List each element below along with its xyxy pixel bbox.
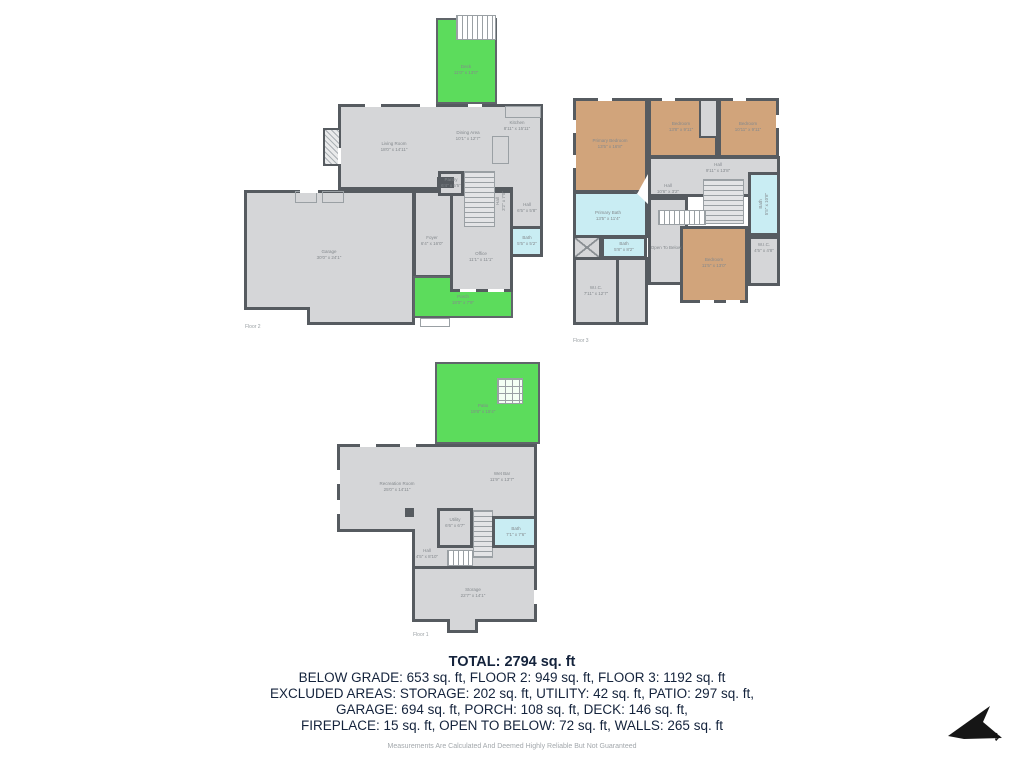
window-marker xyxy=(700,300,714,303)
window-marker xyxy=(338,148,341,164)
summary-line: GARAGE: 694 sq. ft, PORCH: 108 sq. ft, D… xyxy=(0,702,1024,718)
floor1-post xyxy=(405,508,414,517)
floor3-closet-x xyxy=(573,236,601,259)
window-marker xyxy=(337,500,340,514)
area-summary: TOTAL: 2794 sq. ft BELOW GRADE: 653 sq. … xyxy=(0,654,1024,734)
room-label-wic-small: W.I.C.4'5" x 4'8" xyxy=(754,242,774,254)
room-label-hall: Hall6'5" x 5'8" xyxy=(517,202,537,214)
room-label-utility: Utility6'6" x 6'7" xyxy=(445,517,465,529)
north-arrow-icon xyxy=(944,702,1014,754)
floor3-stairs-horizontal-run xyxy=(658,210,706,225)
room-label-bath: Bath5'5" x 5'2" xyxy=(517,235,537,247)
window-marker xyxy=(488,289,504,292)
disclaimer-text: Measurements Are Calculated And Deemed H… xyxy=(0,743,1024,750)
room-label-kitchen: Kitchen8'11" x 15'11" xyxy=(504,120,531,132)
window-marker xyxy=(534,590,537,604)
room-label-wet-bar: Wet Bar11'9" x 13'7" xyxy=(490,471,514,483)
floor2-porch-step xyxy=(420,318,450,327)
room-label-bedroom-right: Bedroom10'11" x 9'11" xyxy=(735,121,762,133)
room-label-deck: Deck11'0" x 13'0" xyxy=(454,64,478,76)
room-label-bath-right: Bath5'5" x 10'8" xyxy=(758,193,770,215)
room-label-office: Office11'1" x 11'1" xyxy=(469,251,493,263)
floor2-foyer-area xyxy=(413,190,455,278)
window-marker xyxy=(468,104,482,107)
floor3-interior-wall xyxy=(616,259,619,323)
floor1-stairs-vertical-run xyxy=(473,510,493,558)
room-label-bedroom-bottom: Bedroom11'5" x 13'0" xyxy=(702,257,726,269)
room-label-bath: Bath7'1" x 7'6" xyxy=(506,526,526,538)
window-marker xyxy=(420,104,436,107)
window-marker xyxy=(662,98,675,101)
room-label-dining-area: Dining Area10'1" x 12'7" xyxy=(456,130,481,142)
floor1-label: Floor 1 xyxy=(413,632,429,638)
window-marker xyxy=(365,104,381,107)
window-marker xyxy=(400,444,416,447)
floor3-label: Floor 3 xyxy=(573,338,589,344)
floor2-label: Floor 2 xyxy=(245,324,261,330)
room-label-hall-upper: Hall9'11" x 13'8" xyxy=(706,162,730,174)
summary-line: FIREPLACE: 15 sq. ft, OPEN TO BELOW: 72 … xyxy=(0,718,1024,734)
floor2-stairs xyxy=(464,171,495,227)
room-label-storage: Storage22'7" x 14'1" xyxy=(461,587,486,599)
room-label-bedroom-mid: Bedroom13'8" x 9'11" xyxy=(669,121,693,133)
room-label-foyer: Foyer6'4" x 16'0" xyxy=(421,235,443,247)
room-label-primary-bath: Primary Bath13'5" x 11'4" xyxy=(595,210,621,222)
floor1-stairs-horizontal-run xyxy=(447,550,473,566)
summary-line: BELOW GRADE: 653 sq. ft, FLOOR 2: 949 sq… xyxy=(0,670,1024,686)
floor2-kitchen-counter xyxy=(505,106,541,118)
floor2-kitchen-island xyxy=(492,136,509,164)
room-label-primary-bedroom: Primary Bedroom13'5" x 16'8" xyxy=(592,138,627,150)
floor1-patio-stairs xyxy=(497,378,523,404)
room-label-living-room: Living Room18'0" x 14'11" xyxy=(381,141,408,153)
window-marker xyxy=(360,444,376,447)
window-marker xyxy=(598,98,612,101)
room-label-hall-small: Hall10'6" x 3'2" xyxy=(657,183,679,195)
floorplan-canvas: Deck11'0" x 13'0" Living Room18'0" x 14'… xyxy=(0,0,1024,768)
room-label-garage: Garage30'0" x 24'1" xyxy=(317,249,342,261)
room-label-bath-small: Bath5'8" x 8'2" xyxy=(614,241,634,253)
window-marker xyxy=(776,115,779,128)
room-label-hall-stairs: Hall3'2" x 7'0" xyxy=(495,191,507,211)
window-marker xyxy=(337,470,340,484)
window-marker xyxy=(733,98,746,101)
room-label-patio: Patio19'8" x 15'4" xyxy=(471,403,496,415)
window-marker xyxy=(726,300,740,303)
room-label-pantry: Pantry6'4" x 5'5" xyxy=(441,177,461,189)
window-marker xyxy=(573,120,576,133)
window-marker xyxy=(573,155,576,168)
floor2-garage-notch xyxy=(307,307,415,325)
room-label-open-to-below: Open To Below xyxy=(651,245,681,251)
window-marker xyxy=(460,289,476,292)
north-arrow: N xyxy=(944,702,1014,754)
summary-line: EXCLUDED AREAS: STORAGE: 202 sq. ft, UTI… xyxy=(0,686,1024,702)
room-label-porch: Porch18'0" x 7'9" xyxy=(452,294,474,306)
floor3-stairs-vertical-run xyxy=(703,179,744,224)
floor2-deck-stairs xyxy=(456,15,496,40)
floor3-closet xyxy=(699,99,718,138)
floor2-garage-door-marker xyxy=(322,191,344,203)
room-label-wic: W.I.C.7'11" x 12'7" xyxy=(584,285,608,297)
window-marker xyxy=(300,190,318,193)
room-label-recreation-room: Recreation Room25'0" x 14'11" xyxy=(379,481,414,493)
room-label-hall: Hall4'5" x 8'10" xyxy=(416,548,438,560)
floor1-storage-stub xyxy=(447,619,478,633)
total-area-text: TOTAL: 2794 sq. ft xyxy=(0,654,1024,670)
